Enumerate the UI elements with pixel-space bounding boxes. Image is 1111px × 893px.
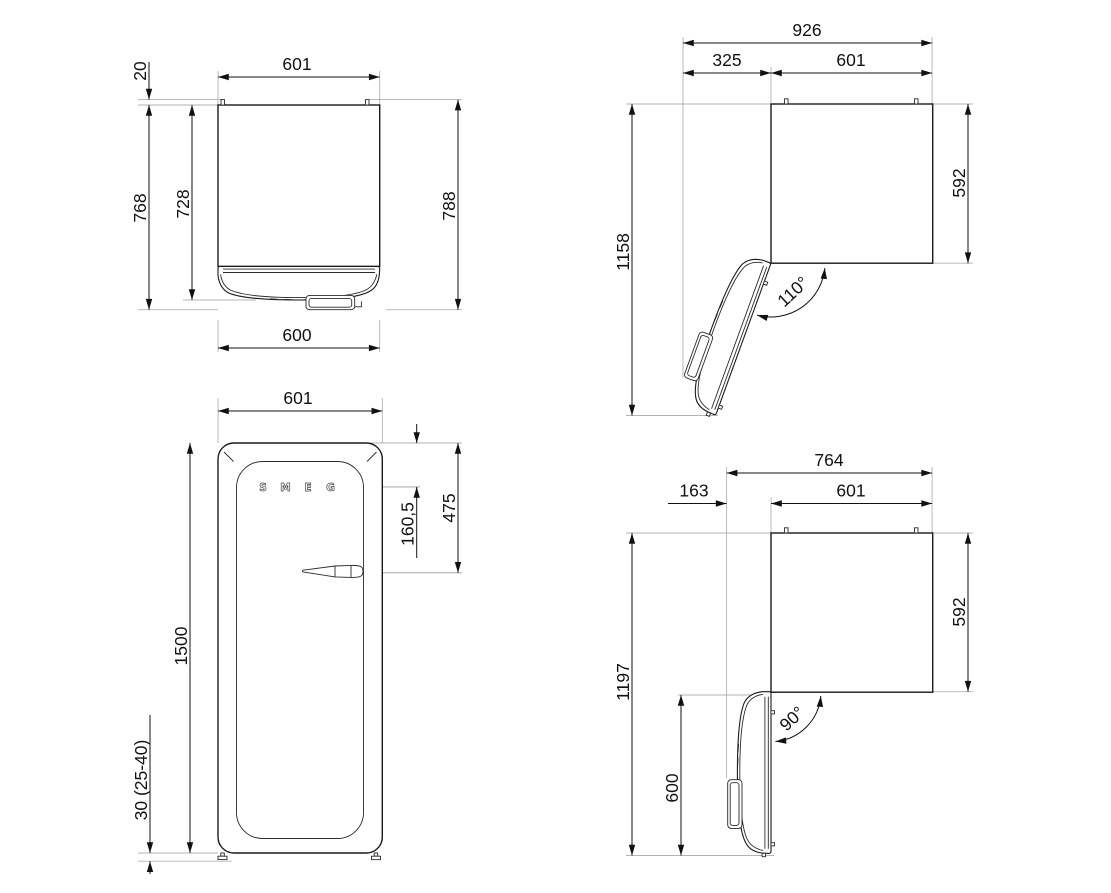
dim-label: 601 — [836, 50, 865, 70]
view-front: S M E G 601 160,5 475 — [131, 388, 462, 874]
dim-label: 768 — [130, 193, 150, 222]
dim-label: 163 — [679, 481, 708, 501]
fridge-feet — [218, 853, 381, 860]
dim-label: 601 — [282, 54, 311, 74]
view-top-open-110: 926 325 601 1158 592 110° — [613, 20, 973, 419]
dim-angle-110: 110° — [757, 268, 825, 317]
dim-depth-728: 728 — [173, 105, 193, 300]
hinge-pin-left — [785, 528, 789, 533]
fridge-body-top-view-110 — [771, 104, 933, 263]
dim-angle-90: 90° — [775, 696, 820, 742]
dim-depth-total-788: 788 — [439, 100, 459, 310]
door-open-110 — [674, 248, 774, 419]
dim-width-601-front: 601 — [218, 388, 382, 411]
dim-label: 764 — [814, 450, 843, 470]
logo-letter: E — [304, 482, 311, 494]
dim-width-bottom-600: 600 — [218, 325, 380, 348]
view-top-closed: 601 20 768 728 788 600 — [130, 54, 462, 352]
door-closed-top-view — [218, 266, 380, 309]
dim-width-total-764: 764 — [727, 450, 933, 473]
fridge-body-top-view-90 — [771, 533, 933, 692]
dim-label: 601 — [836, 481, 865, 501]
hinge-pin-right — [366, 100, 370, 105]
dim-label: 601 — [283, 388, 312, 408]
view-top-open-90: 764 163 601 1197 592 600 90° — [613, 450, 973, 857]
dim-door-projection-163: 163 — [668, 481, 727, 504]
dim-depth-body-592: 592 — [949, 104, 969, 263]
dim-label: 30 (25-40) — [131, 740, 151, 821]
logo-letter: G — [326, 482, 335, 494]
dim-height-1500: 1500 — [171, 443, 191, 853]
dim-width-total-926: 926 — [683, 20, 932, 43]
fridge-body-top-view — [218, 105, 380, 266]
handle-step-detail — [355, 301, 362, 307]
dim-depth-body-592-90: 592 — [949, 533, 969, 692]
hinge-pin-right — [915, 528, 919, 533]
dimension-drawing: 601 20 768 728 788 600 — [0, 0, 1111, 893]
dim-handle-475: 475 — [439, 443, 459, 573]
dim-label: 592 — [949, 597, 969, 626]
dim-label: 325 — [712, 50, 741, 70]
dim-door-extension-600: 600 — [662, 695, 682, 856]
dim-logo-160-5: 160,5 — [398, 424, 418, 558]
dim-depth-768: 768 — [130, 105, 150, 310]
dim-door-swing-325: 325 — [683, 50, 771, 73]
dimension-drawing-canvas: 601 20 768 728 788 600 — [0, 0, 1111, 893]
dim-label: 728 — [173, 189, 193, 218]
dim-width-top-601: 601 — [218, 54, 380, 77]
dim-label: 475 — [439, 493, 459, 522]
dim-label: 592 — [949, 168, 969, 197]
dim-label: 1197 — [613, 663, 633, 701]
dim-label: 600 — [662, 773, 682, 802]
dim-label: 20 — [130, 61, 150, 81]
dim-depth-total-1197: 1197 — [613, 533, 633, 856]
dim-label: 600 — [282, 325, 311, 345]
logo-letter: M — [280, 482, 290, 494]
logo-letter: S — [259, 482, 267, 494]
dim-depth-total-1158: 1158 — [613, 104, 633, 416]
fridge-front-outline — [218, 443, 382, 853]
dim-label: 160,5 — [398, 502, 418, 546]
dim-width-601: 601 — [771, 50, 932, 73]
dim-label: 1158 — [613, 233, 633, 271]
dim-width-601-90: 601 — [771, 481, 932, 504]
dim-feet-30-25-40: 30 (25-40) — [131, 715, 151, 874]
hinge-pin-left — [785, 99, 789, 104]
hinge-pin-left — [221, 100, 225, 105]
dim-hinge-clearance-20: 20 — [130, 61, 150, 100]
angle-label: 110° — [773, 272, 812, 310]
dim-label: 1500 — [171, 626, 191, 665]
hinge-pin-right — [915, 99, 919, 104]
dim-label: 926 — [792, 20, 821, 40]
dim-label: 788 — [439, 191, 459, 220]
door-open-90 — [728, 692, 775, 857]
